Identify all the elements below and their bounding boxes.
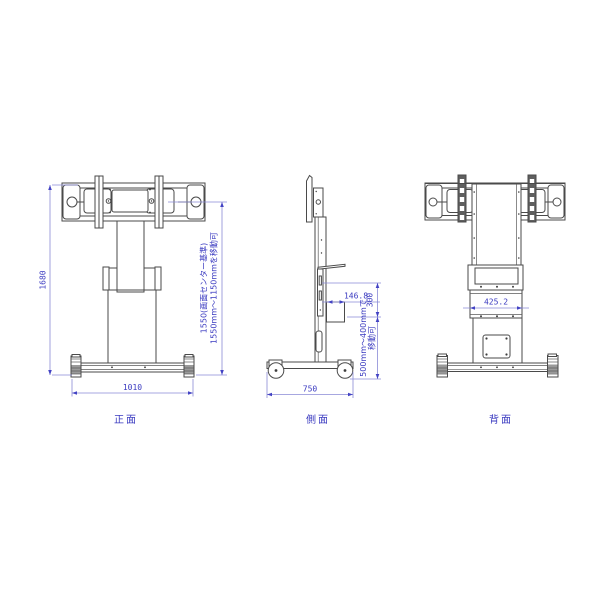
dim-front-base-width-text: 1010 bbox=[123, 383, 142, 392]
view-labels: 正面 側面 背面 bbox=[114, 413, 513, 426]
side-tv-plate bbox=[307, 176, 324, 223]
back-caster-right bbox=[548, 354, 559, 377]
dim-front-center-note-line1: 1550(画面センター基準) bbox=[199, 243, 209, 334]
dim-front-screen-center: 1550(画面センター基準) 1550mm～1150mmを移動可 bbox=[168, 202, 227, 375]
front-view bbox=[62, 176, 205, 377]
dim-front-total-height-text: 1680 bbox=[39, 270, 48, 289]
side-view-label: 側面 bbox=[306, 413, 330, 426]
drawing-page: 1680 1010 1550(画面センター基準) 1550mm～1150mmを移… bbox=[0, 0, 600, 600]
dim-side-base-depth-text: 750 bbox=[303, 385, 318, 394]
dim-side-move-note-line2: 移動可 bbox=[367, 326, 377, 350]
back-view-label: 背面 bbox=[489, 413, 513, 426]
dim-side-move-range: 500mm～400mmで 移動可 bbox=[350, 299, 381, 379]
side-shelf bbox=[318, 264, 346, 322]
back-shelf-housing bbox=[468, 265, 523, 318]
back-view bbox=[425, 175, 565, 377]
dim-front-center-note-line2: 1550mm～1150mmを移動可 bbox=[209, 232, 219, 344]
side-view bbox=[267, 176, 353, 379]
back-caster-left bbox=[437, 354, 448, 377]
front-caster-left bbox=[71, 355, 81, 378]
dim-back-panel-width-text: 425.2 bbox=[484, 298, 508, 307]
back-lower-box bbox=[473, 318, 522, 363]
side-base bbox=[267, 360, 353, 378]
front-caster-right bbox=[184, 355, 194, 378]
front-column bbox=[103, 221, 161, 363]
technical-drawing: 1680 1010 1550(画面センター基準) 1550mm～1150mmを移… bbox=[0, 0, 600, 600]
dim-front-base-width: 1010 bbox=[72, 379, 193, 397]
front-view-label: 正面 bbox=[114, 415, 138, 426]
front-base bbox=[72, 363, 193, 372]
back-base bbox=[438, 363, 557, 372]
